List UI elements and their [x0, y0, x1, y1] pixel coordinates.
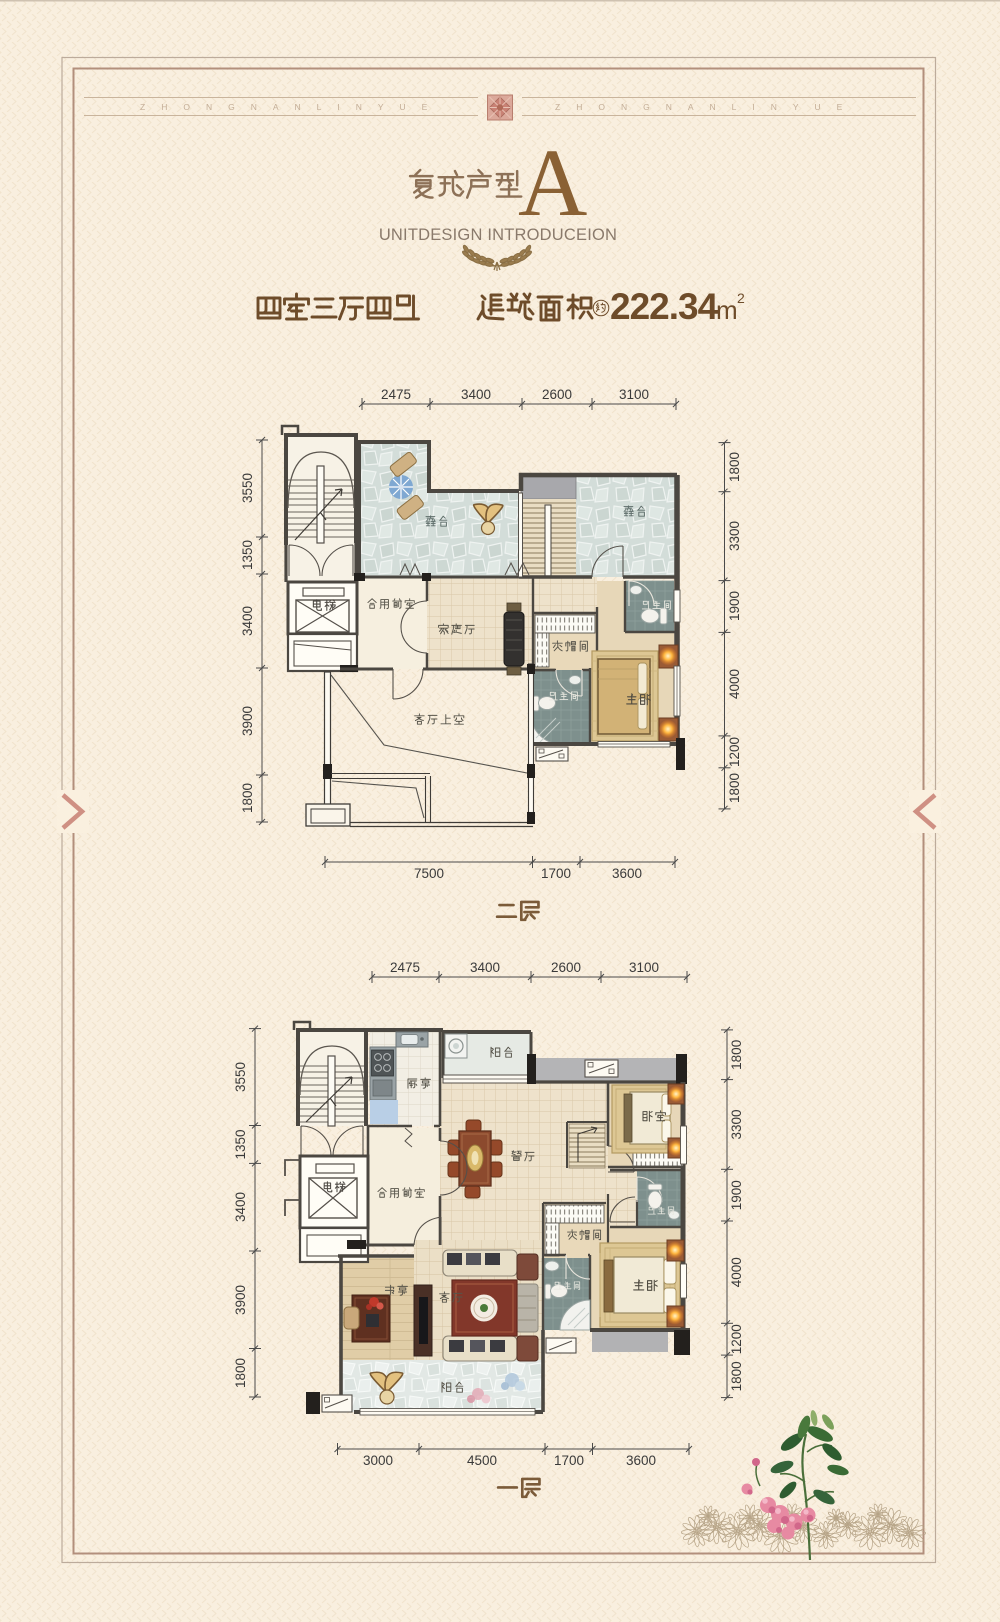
- svg-text:3400: 3400: [240, 606, 255, 636]
- svg-text:1350: 1350: [240, 540, 255, 570]
- svg-text:1700: 1700: [554, 1453, 584, 1468]
- svg-text:1350: 1350: [233, 1129, 248, 1159]
- svg-text:2475: 2475: [381, 387, 411, 402]
- svg-text:3900: 3900: [233, 1285, 248, 1315]
- svg-text:2600: 2600: [542, 387, 572, 402]
- svg-text:A: A: [518, 129, 587, 236]
- svg-text:222.34: 222.34: [610, 286, 719, 327]
- svg-text:3000: 3000: [363, 1453, 393, 1468]
- svg-text:4000: 4000: [727, 669, 742, 699]
- svg-text:1800: 1800: [727, 452, 742, 482]
- svg-text:3900: 3900: [240, 706, 255, 736]
- svg-text:1800: 1800: [729, 1361, 744, 1391]
- svg-text:4000: 4000: [729, 1257, 744, 1287]
- svg-text:2475: 2475: [390, 960, 420, 975]
- svg-text:3600: 3600: [626, 1453, 656, 1468]
- svg-text:3400: 3400: [233, 1192, 248, 1222]
- svg-text:3400: 3400: [461, 387, 491, 402]
- svg-text:7500: 7500: [414, 866, 444, 881]
- svg-text:3100: 3100: [629, 960, 659, 975]
- svg-text:1800: 1800: [727, 773, 742, 803]
- svg-text:4500: 4500: [467, 1453, 497, 1468]
- svg-text:1800: 1800: [729, 1040, 744, 1070]
- svg-text:2600: 2600: [551, 960, 581, 975]
- svg-text:3100: 3100: [619, 387, 649, 402]
- svg-text:ZHONGNANLINYUE: ZHONGNANLINYUE: [555, 102, 858, 112]
- svg-text:1200: 1200: [729, 1324, 744, 1354]
- svg-text:3300: 3300: [727, 521, 742, 551]
- svg-text:2: 2: [737, 290, 745, 306]
- svg-text:1800: 1800: [240, 783, 255, 813]
- svg-text:m: m: [716, 295, 738, 325]
- svg-text:1900: 1900: [729, 1180, 744, 1210]
- svg-text:3400: 3400: [470, 960, 500, 975]
- svg-text:3550: 3550: [240, 473, 255, 503]
- svg-text:1900: 1900: [727, 591, 742, 621]
- svg-text:ZHONGNANLINYUE: ZHONGNANLINYUE: [140, 102, 443, 112]
- svg-text:1800: 1800: [233, 1358, 248, 1388]
- svg-text:1200: 1200: [727, 737, 742, 767]
- svg-text:UNITDESIGN INTRODUCEION: UNITDESIGN INTRODUCEION: [379, 226, 617, 244]
- svg-text:3600: 3600: [612, 866, 642, 881]
- svg-text:3300: 3300: [729, 1109, 744, 1139]
- svg-text:1700: 1700: [541, 866, 571, 881]
- svg-text:3550: 3550: [233, 1062, 248, 1092]
